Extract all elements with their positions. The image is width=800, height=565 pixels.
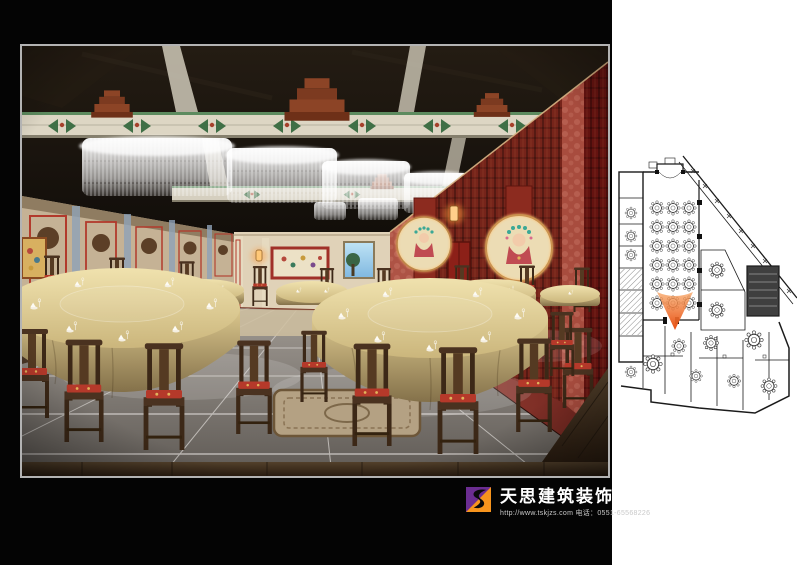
floor-plan-drawing [619, 156, 797, 413]
floor-plan [613, 150, 797, 424]
contact-line: http://www.tskjzs.com 电话：0551-65568226 [500, 508, 650, 518]
website: http://www.tskjzs.com [500, 510, 573, 517]
presentation-page: 天思建筑装饰 http://www.tskjzs.com 电话：0551-655… [0, 0, 800, 565]
company-logo: 天思建筑装饰 http://www.tskjzs.com 电话：0551-655… [466, 487, 650, 518]
logo-text: 天思建筑装饰 http://www.tskjzs.com 电话：0551-655… [500, 487, 650, 518]
plan-location-marker [657, 292, 693, 330]
presentation-board: 天思建筑装饰 http://www.tskjzs.com 电话：0551-655… [0, 0, 612, 565]
phone-number: 0551-65568226 [597, 510, 650, 517]
interior-render [22, 46, 608, 476]
interior-render-frame [20, 44, 610, 478]
vignette-overlay [22, 46, 608, 476]
side-private-rooms [701, 250, 745, 330]
phone-label: 电话： [575, 510, 597, 517]
company-name: 天思建筑装饰 [500, 487, 650, 507]
wing-tables [625, 207, 637, 261]
logo-icon [466, 487, 491, 512]
service-core [747, 266, 779, 316]
bottom-private-rooms [621, 320, 789, 413]
